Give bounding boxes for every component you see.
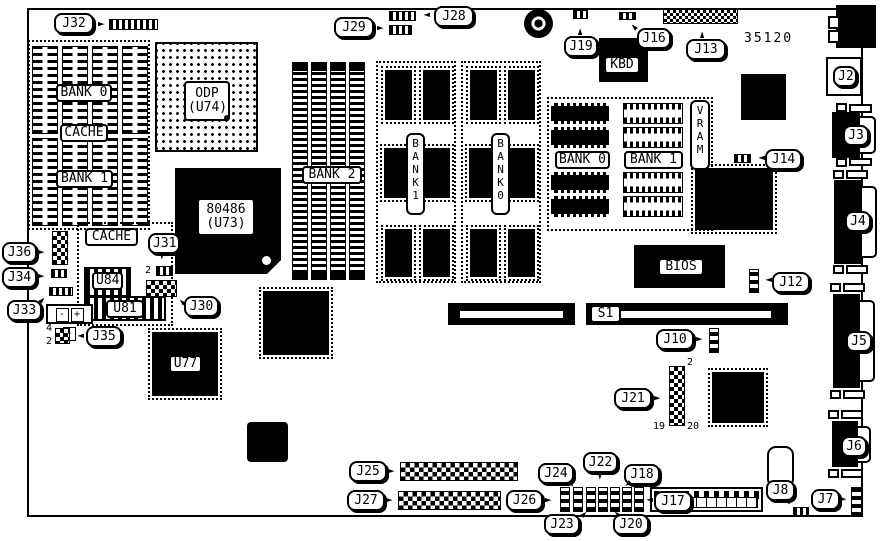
- j19-header: [573, 10, 588, 19]
- bank0-ram-chip: [470, 70, 497, 120]
- cache-dip-socket: [122, 138, 148, 226]
- cache-dip-socket: [32, 138, 58, 226]
- cache-dip-socket: [122, 46, 148, 134]
- callout-j32: J32: [54, 13, 94, 34]
- odp-pin1-dot: [224, 115, 230, 121]
- cpu-label: 80486 (U73): [197, 198, 255, 236]
- bios-label: BIOS: [658, 258, 704, 276]
- kbd-label: KBD: [604, 56, 640, 74]
- arrow-icon: [696, 26, 708, 38]
- j31-pin2-number: 2: [145, 266, 151, 276]
- j12-header: [749, 269, 759, 293]
- cpu-pin1-dot: [262, 256, 271, 265]
- j29-header: [389, 25, 412, 35]
- power-tab: [828, 30, 840, 43]
- j4-mount-tab: [833, 265, 844, 274]
- j35-pin2-number: 2: [46, 337, 52, 347]
- vram-bank1-socket: [623, 172, 683, 193]
- callout-j6: J6: [841, 436, 867, 457]
- j4-mount-tab: [846, 170, 868, 179]
- arrow-icon: [72, 330, 84, 342]
- arrow-icon: [545, 494, 557, 506]
- j28-header: [389, 11, 416, 21]
- callout-j36: J36: [2, 242, 37, 263]
- j6-mount-tab: [841, 410, 863, 419]
- j13-header: [663, 9, 738, 24]
- j7-header: [851, 487, 862, 517]
- callout-j13: J13: [686, 39, 726, 60]
- j31-header: [156, 266, 173, 276]
- vram-label: V R A M: [690, 100, 710, 170]
- slot-opening: [460, 311, 563, 318]
- arrow-icon: [574, 23, 586, 35]
- callout-j33: J33: [7, 300, 42, 321]
- callout-j27: J27: [347, 490, 385, 511]
- battery-holder: -+-: [46, 304, 93, 324]
- bank1-ram-chip: [423, 229, 450, 277]
- arrow-icon: [641, 494, 653, 506]
- arrow-icon: [377, 22, 389, 34]
- j8-header: [793, 507, 809, 516]
- arrow-icon: [594, 473, 606, 485]
- battery-plus: +: [71, 308, 84, 322]
- bank1-ram-chip: [423, 70, 450, 120]
- j4-mount-tab: [833, 170, 844, 179]
- callout-j12: J12: [772, 272, 810, 293]
- cache-bank1-label: BANK 1: [56, 170, 113, 188]
- j21-header: [669, 366, 685, 426]
- vram-bank1-socket: [623, 196, 683, 217]
- arrow-icon: [840, 493, 852, 505]
- arrow-icon: [760, 274, 772, 286]
- j5-mount-tab: [843, 390, 865, 399]
- j33-header: [49, 287, 73, 296]
- j5-mount-tab: [843, 283, 865, 292]
- callout-j28: J28: [434, 6, 474, 27]
- j22-jumper: [598, 487, 608, 512]
- bank0-ram-chip: [508, 70, 535, 120]
- j10-header: [709, 328, 719, 353]
- arrow-icon: [156, 253, 168, 265]
- arrow-icon: [38, 270, 50, 282]
- callout-j10: J10: [656, 329, 694, 350]
- odp-label: ODP (U74): [184, 81, 230, 121]
- callout-j30: J30: [184, 296, 219, 317]
- u84-label: U84: [92, 272, 123, 290]
- arrow-icon: [388, 465, 400, 477]
- callout-j5: J5: [846, 331, 872, 352]
- qfp-chip-lower-right: [712, 372, 764, 423]
- j3-mount-tab: [849, 158, 872, 166]
- board-number: 35120: [744, 31, 793, 46]
- cache-label: CACHE: [60, 124, 108, 142]
- arrow-icon: [654, 392, 666, 404]
- j21-pin2-number: 2: [687, 358, 693, 368]
- cache-dip-socket: [32, 46, 58, 134]
- s1-label: S1: [590, 305, 621, 323]
- callout-j19: J19: [564, 36, 598, 57]
- j25-header: [400, 462, 518, 481]
- vram-bank1-label: BANK 1: [624, 151, 683, 169]
- j14-header: [734, 154, 751, 163]
- callout-j26: J26: [506, 490, 543, 511]
- callout-j16: J16: [637, 28, 671, 49]
- vram-bank0-chip: [551, 127, 609, 148]
- video-controller-chip: [695, 168, 773, 230]
- qfp-chip: [263, 291, 329, 355]
- power-tab: [828, 16, 840, 29]
- callout-j4: J4: [845, 211, 871, 232]
- arrow-icon: [386, 494, 398, 506]
- bank2-label: BANK 2: [302, 166, 362, 184]
- bank1-ram-chip: [385, 70, 412, 120]
- callout-j34: J34: [2, 267, 37, 288]
- bank1-ram-chip: [385, 229, 412, 277]
- slot-opening: [603, 311, 771, 318]
- j35-pin4-number: 4: [46, 324, 52, 334]
- vram-bank0-chip: [551, 103, 609, 124]
- j6-mount-tab: [828, 410, 839, 419]
- power-connector: [836, 5, 876, 48]
- vram-bank0-chip: [551, 172, 609, 193]
- callout-j2: J2: [833, 66, 857, 87]
- callout-j35: J35: [86, 326, 122, 347]
- j6-mount-tab: [841, 469, 863, 478]
- battery-minus: -: [56, 308, 69, 322]
- chip-top-right: [741, 74, 786, 120]
- j30-header: [146, 280, 177, 297]
- callout-j31: J31: [148, 233, 180, 254]
- speaker-icon: [524, 9, 553, 38]
- cache2-label: CACHE: [85, 228, 138, 246]
- vram-bank1-socket: [623, 127, 683, 148]
- arrow-icon: [753, 152, 765, 164]
- arrow-icon: [98, 18, 110, 30]
- j5-mount-tab: [830, 390, 841, 399]
- j3-mount-tab: [836, 103, 847, 112]
- callout-j22: J22: [583, 452, 618, 473]
- vram-bank0-label: BANK 0: [555, 151, 610, 169]
- callout-j17: J17: [654, 491, 692, 512]
- bank0-ram-chip: [508, 229, 535, 277]
- j4-mount-tab: [846, 265, 868, 274]
- callout-j21: J21: [614, 388, 652, 409]
- j5-mount-tab: [830, 283, 841, 292]
- vram-bank1-socket: [623, 103, 683, 124]
- callout-j20: J20: [613, 514, 649, 535]
- callout-j23: J23: [544, 514, 580, 535]
- bank1-vertical-label: B A N K 1: [406, 133, 425, 215]
- j21-pin20-number: 20: [687, 422, 699, 432]
- callout-j14: J14: [765, 149, 802, 170]
- callout-j29: J29: [334, 17, 374, 38]
- arrow-icon: [418, 9, 430, 21]
- j6-mount-tab: [828, 469, 839, 478]
- bank0-vertical-label: B A N K 0: [491, 133, 510, 215]
- expansion-slot: [448, 303, 575, 325]
- chip-small: [247, 422, 288, 462]
- j34-header: [51, 269, 67, 278]
- arrow-icon: [696, 333, 708, 345]
- callout-j25: J25: [349, 461, 387, 482]
- j21-pin19-number: 19: [653, 422, 665, 432]
- j36-header: [52, 231, 68, 265]
- motherboard-diagram: J32 J29 J28 J19 J16 J13 35120 KBD J2 J3 …: [0, 0, 884, 541]
- j27-header: [398, 491, 501, 510]
- j3-mount-tab: [836, 158, 847, 167]
- vram-bank0-chip: [551, 196, 609, 217]
- callout-j7: J7: [811, 489, 840, 510]
- callout-j3: J3: [843, 125, 869, 146]
- j32-header: [109, 19, 158, 30]
- cache-bank0-label: BANK 0: [56, 84, 112, 102]
- arrow-icon: [38, 246, 50, 258]
- u77-label: U77: [169, 355, 202, 373]
- u81-label: U81: [106, 300, 144, 318]
- bank0-ram-chip: [470, 229, 497, 277]
